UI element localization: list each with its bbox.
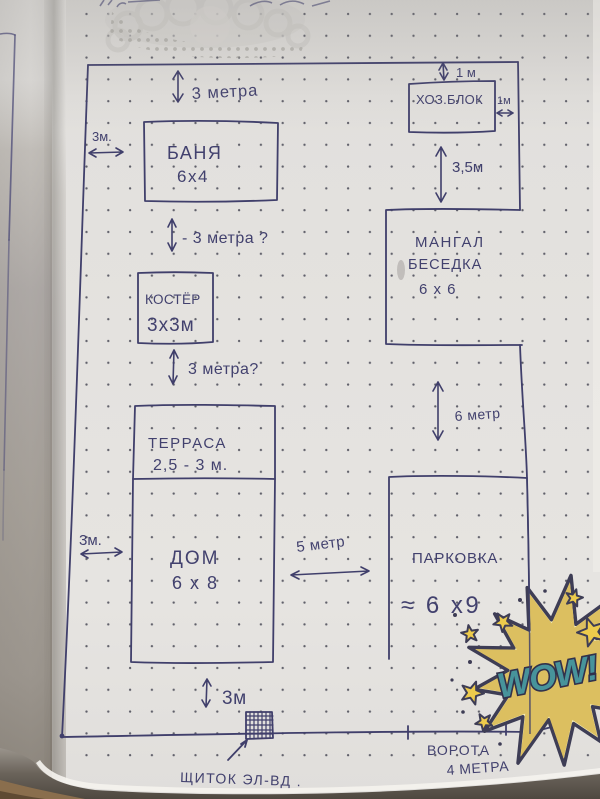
svg-text:ВОРОТА: ВОРОТА bbox=[427, 742, 490, 758]
svg-text:ДОМ: ДОМ bbox=[170, 548, 219, 569]
svg-text:МАНГАЛ: МАНГАЛ bbox=[415, 234, 485, 251]
svg-text:3х3м: 3х3м bbox=[147, 315, 195, 336]
svg-text:3м.: 3м. bbox=[79, 532, 102, 549]
svg-text:6 х 6: 6 х 6 bbox=[419, 281, 457, 298]
svg-text:6 метр: 6 метр bbox=[454, 405, 501, 424]
svg-text:3 метра?: 3 метра? bbox=[188, 361, 259, 378]
svg-text:3м: 3м bbox=[222, 688, 247, 709]
svg-text:ПАРКОВКА: ПАРКОВКА bbox=[412, 550, 498, 567]
svg-text:≈ 6 х9: ≈ 6 х9 bbox=[401, 592, 481, 619]
svg-text:КОСТЁР: КОСТЁР bbox=[145, 292, 201, 307]
svg-text:6 х 8: 6 х 8 bbox=[172, 573, 219, 593]
svg-text:3,5м: 3,5м bbox=[452, 159, 483, 176]
svg-text:БАНЯ: БАНЯ bbox=[167, 143, 222, 163]
svg-text:2,5 - 3 м.: 2,5 - 3 м. bbox=[153, 457, 228, 474]
svg-text:- 3 метра ?: - 3 метра ? bbox=[182, 230, 268, 247]
svg-text:ТЕРРАСА: ТЕРРАСА bbox=[148, 435, 227, 452]
svg-text:6х4: 6х4 bbox=[177, 167, 209, 186]
svg-text:БЕСЕДКА: БЕСЕДКА bbox=[408, 257, 482, 273]
